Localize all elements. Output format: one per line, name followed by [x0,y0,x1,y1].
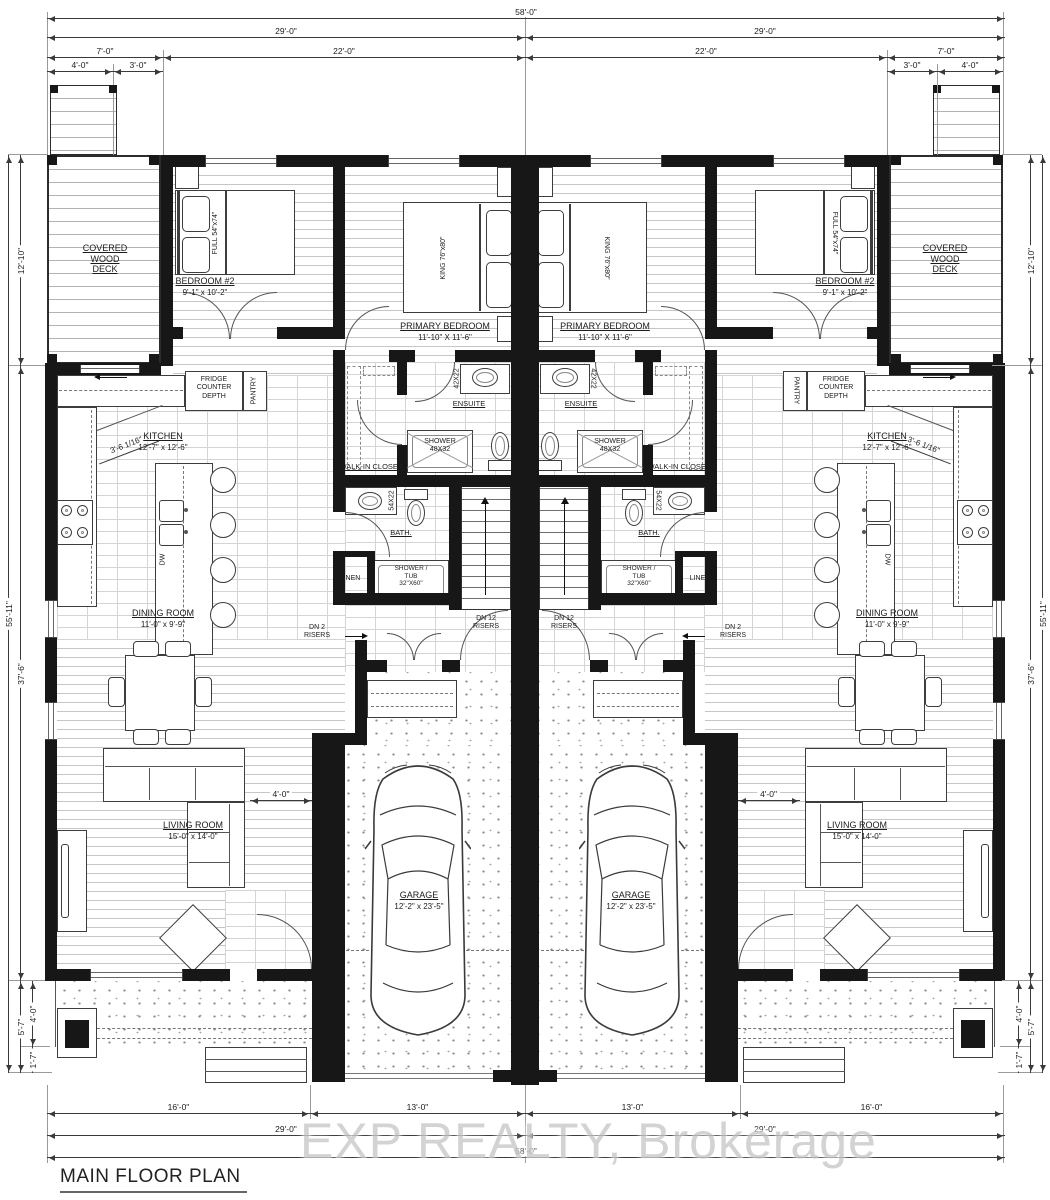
burner [978,527,989,538]
ext-line [8,980,48,981]
blanket-line [225,191,227,274]
dim-label: 16'-0" [165,1102,193,1112]
wic-name: WALK-IN CLOSET [647,463,711,472]
pantry-label: PANTRY [251,367,260,415]
dishwasher-label: DW [882,545,891,575]
living-size: 15'-0" x 14'-0" [133,832,253,841]
chair [133,729,159,745]
bath-name: BATH. [375,529,427,538]
window-dining-2 [993,702,1005,740]
burner [962,505,973,516]
toilet-bowl [541,432,559,460]
wall-linen-north [675,551,717,557]
linen-name: LINEN [331,575,369,583]
chair [859,729,885,745]
stool [210,467,236,493]
unit-left: FULL 54"x74" BEDROOM #2 9'-1" x 10'-2" C… [45,0,525,1200]
stairs-label: DN 12 RISERS [459,615,513,632]
bath-name: BATH. [623,529,675,538]
dim-main-depth-left: 37'-6" [20,366,21,981]
dim-main-depth-right: 37'-6" [1030,366,1031,981]
dim-side-total-left: 55'-11" [8,155,9,1073]
dining-size: 11'-0" x 9'-9" [829,620,945,629]
stool [814,512,840,538]
ext-line [887,50,888,155]
dim-label: 16'-0" [858,1102,886,1112]
linen-name: LINEN [681,575,719,583]
ensuite-vanity-label: 42X22 [454,361,463,397]
wall-garage-step [312,733,367,745]
stool [814,467,840,493]
wall-core-north [333,350,345,362]
garage-stairs-label: DN 2 RISERS [291,624,343,641]
slider-arrow [97,377,127,378]
chair [838,677,855,707]
shower-tub-label: SHOWER / TUB 32"X60" [605,565,673,588]
dim-label: 3'-0" [901,60,924,70]
ext-line [47,12,48,155]
pillow [182,196,210,232]
wall-bath-north [539,475,705,487]
dim-label: 3'-0" [127,60,150,70]
sofa-chaise [805,802,863,888]
sink-basin [866,524,891,546]
dim-label: 4'-0" [959,60,982,70]
dim-label: 58'-0" [512,1146,540,1156]
wall-bath-south [333,593,461,605]
toilet-bowl [407,500,425,526]
dim-deck-rest-right: 3'-0" [887,71,937,72]
wall-bedroom-divider [333,167,345,339]
sink-basin [159,524,184,546]
wall-core-west [705,362,717,512]
wic-shelf [347,366,361,470]
sofa-seam [807,766,945,767]
dim-label: 7'-0" [935,46,958,56]
dim-deck-rest-left: 3'-0" [113,71,163,72]
counter-dash [867,390,991,391]
tv [61,844,69,918]
garage-stairs-arrow [685,636,705,637]
dim-label: 29'-0" [751,26,779,36]
porch-edge [55,981,56,1047]
porch-steps [743,1047,845,1083]
chair [891,641,917,657]
full-bed-label: FULL 54"x74" [212,201,222,265]
king-bed-label: KING 76"x80" [440,226,450,290]
window-primary [388,155,460,167]
front-door-opening [793,969,820,981]
tv [981,844,989,918]
sofa [103,748,245,802]
deck-name: COVERED WOOD DECK [65,243,145,275]
wall-deck-side [877,167,889,366]
sofa-seam [149,768,150,800]
wall-garage-west [705,745,738,1070]
dim-label: 37'-6" [1026,660,1036,688]
ext-line [1003,1085,1004,1163]
bath-sink [668,492,692,510]
dim-overall-bottom: 58'-0" [47,1157,1005,1158]
garage-steps [367,680,457,718]
garage-door [345,1070,493,1082]
step-dash [371,706,453,707]
sofa-seam [854,768,855,800]
dim-label: 12'-10" [16,244,26,276]
toilet-tank [404,489,428,500]
window-living [90,969,183,981]
porch-edge [994,981,995,1047]
wall-deck-side [161,167,173,366]
sofa-seam [900,768,901,800]
ext-line [525,12,526,155]
garage-stairs-arrow [345,636,365,637]
page-title: MAIN FLOOR PLAN [60,1166,247,1193]
sofa-seam [195,768,196,800]
chair [108,677,125,707]
living-size: 15'-0" x 14'-0" [797,832,917,841]
kitchen-name: KITCHEN [839,431,935,442]
dim-label: 22'-0" [692,46,720,56]
wall-bedroom2-south [717,327,773,339]
living-name: LIVING ROOM [133,820,253,831]
dim-porch-depth-left: 4'-0" [32,981,33,1047]
ext-line [8,154,48,155]
headboard [177,190,180,275]
pillow [538,210,564,256]
dim-label: 4'-0" [270,789,293,799]
dim-label: 13'-0" [619,1102,647,1112]
front-door-opening [230,969,257,981]
wall-garage-front [525,1070,557,1082]
dim-overall-top: 58'-0" [47,18,1005,19]
dim-label: 22'-0" [330,46,358,56]
ensuite-sink [472,368,498,387]
bath-vanity-label: 54X22 [389,483,398,519]
bedroom2-name: BEDROOM #2 [145,276,265,287]
burner [978,505,989,516]
wall-west [993,375,1005,981]
living-name: LIVING ROOM [797,820,917,831]
wall-garage-front [312,1070,345,1082]
ensuite-name: ENSUITE [557,400,605,409]
wall-linen-north [333,551,375,557]
pillow [182,237,210,273]
pillow [486,262,512,308]
wic-shelf [689,366,703,470]
dim-front-garage-right: 13'-0" [525,1113,740,1114]
garage-name: GARAGE [595,890,667,901]
dim-label: 55'-11" [4,598,14,630]
toilet-tank [538,460,562,471]
bedroom2-size: 9'-1" x 10'-2" [145,288,265,297]
dim-porch-steps-left: 1'-7" [32,1047,33,1073]
pantry-label: PANTRY [791,367,800,415]
kitchen-name: KITCHEN [115,431,211,442]
counter-dash [59,390,183,391]
step-dash [371,693,453,694]
stool [210,557,236,583]
garage-size: 12'-2" x 23'-5" [379,902,459,911]
step-line [743,1071,845,1072]
window-dining-2 [45,702,57,740]
fridge-label: FRIDGE COUNTER DEPTH [809,376,863,401]
wall-garage-north [442,660,460,672]
step-line [205,1071,307,1072]
floor-plan: FULL 54"x74" BEDROOM #2 9'-1" x 10'-2" C… [0,0,1050,1200]
dim-label: 29'-0" [272,1124,300,1134]
dim-deck-left: 7'-0" [47,57,163,58]
dining-name: DINING ROOM [829,608,945,619]
chair [165,729,191,745]
wic-shelf [363,366,395,376]
sink-basin [866,500,891,522]
dim-living-clear: 4'-0" [738,800,800,801]
sofa-seam [820,804,821,886]
pillow [840,237,868,273]
ext-line [1002,980,1042,981]
wic-name: WALK-IN CLOSET [339,463,403,472]
dim-label: 5'-7" [16,1016,26,1039]
deck-post [891,155,901,165]
wall-bedroom2-south [867,327,877,339]
dim-unit-left: 22'-0" [163,57,525,58]
dim-porch-total-right: 5'-7" [1030,981,1031,1073]
wall-bedroom2-south [277,327,333,339]
dining-table [125,655,195,731]
wic-shelf [655,366,687,376]
deck-post [149,155,159,165]
wall-bath-south [589,593,717,605]
dim-half-left: 29'-0" [47,37,525,38]
burner [77,527,88,538]
dim-label: 4'-0" [758,789,781,799]
primary-name: PRIMARY BEDROOM [375,321,515,332]
chair [133,641,159,657]
dim-side-total-right: 55'-11" [1042,155,1043,1073]
dim-porch-steps-right: 1'-7" [1018,1047,1019,1073]
dim-label: 29'-0" [272,26,300,36]
sofa-chaise [187,802,245,888]
stairs-label: DN 12 RISERS [537,615,591,632]
pillow [538,262,564,308]
bedroom2-size: 9'-1" x 10'-2" [785,288,905,297]
sofa-seam [229,804,230,886]
toilet-tank [488,460,512,471]
bath-vanity-label: 54X22 [653,483,662,519]
wall-garage-front [493,1070,525,1082]
king-bed-label: KING 76"x80" [600,226,610,290]
dim-label: 13'-0" [404,1102,432,1112]
pillow [840,196,868,232]
kitchen-counter-north [865,375,993,407]
primary-size: 11'-10" X 11'-6" [375,333,515,342]
wall-stair-west [449,487,461,610]
wall-front [705,969,1005,981]
dim-label: 12'-10" [1026,244,1036,276]
window-dining-1 [45,600,57,638]
ext-line [1002,154,1042,155]
porch-steps [205,1047,307,1083]
stool [210,512,236,538]
step-dash [597,693,679,694]
window-bedroom2 [205,155,277,167]
dim-deck-depth-left: 12'-10" [20,155,21,366]
blanket-line [824,191,826,274]
sofa-seam [821,862,861,863]
dim-front-living-right: 16'-0" [740,1113,1003,1114]
wall-garage-west-upper [355,640,367,745]
sofa-seam [189,862,229,863]
porch-column [65,1020,89,1048]
sofa-seam [105,766,243,767]
ext-line [992,365,1042,366]
dim-label: 37'-6" [16,660,26,688]
step-dash [597,706,679,707]
dim-label: 29'-0" [751,1124,779,1134]
slider-arrow [923,377,953,378]
dim-label: 1'-7" [1014,1049,1024,1072]
porch-dash [738,1038,953,1039]
wall-bedroom2-south [173,327,183,339]
primary-size: 11'-10" X 11'-6" [535,333,675,342]
wall-garage-north [590,660,608,672]
wall-wic-ensuite [397,362,407,395]
faucet [184,508,188,512]
dining-name: DINING ROOM [105,608,221,619]
toilet-bowl [625,500,643,526]
ext-line [47,1085,48,1163]
ensuite-name: ENSUITE [445,400,493,409]
wall-bedroom-divider [705,167,717,339]
stool [814,557,840,583]
dim-label: 4'-0" [69,60,92,70]
dim-label: 58'-0" [512,7,540,17]
wall-party [511,155,525,1085]
dim-deck-stair-left: 4'-0" [47,71,113,72]
wall-core-north [389,350,415,362]
kitchen-size: 12'-7" x 12'-6" [115,443,211,452]
shower-label: SHOWER 48X32 [579,438,641,455]
chair [925,677,942,707]
headboard [870,190,873,275]
porch-dash [738,1028,953,1029]
step-line [743,1059,845,1060]
window-bedroom2 [773,155,845,167]
dim-living-clear: 4'-0" [250,800,312,801]
toilet-bowl [491,432,509,460]
ensuite-vanity-label: 42X22 [588,361,597,397]
chair [891,729,917,745]
burner [962,527,973,538]
window-living [867,969,960,981]
toilet-tank [622,489,646,500]
deck-post [109,85,117,93]
porch-column [961,1020,985,1048]
sofa [805,748,947,802]
burner [61,527,72,538]
ext-line [937,64,938,155]
blanket-line [479,204,481,311]
deck-stairs [50,85,117,155]
dim-half-bottom-right: 29'-0" [525,1135,1005,1136]
kitchen-size: 12'-7" x 12'-6" [839,443,935,452]
wall-garage-step [683,733,738,745]
primary-name: PRIMARY BEDROOM [535,321,675,332]
chair [859,641,885,657]
dishwasher-label: DW [160,545,169,575]
wall-core-west [333,362,345,512]
dim-front-garage-left: 13'-0" [310,1113,525,1114]
deck-slider-door [80,365,140,373]
chair [165,641,191,657]
fridge-label: FRIDGE COUNTER DEPTH [187,376,241,401]
dim-half-right: 29'-0" [525,37,1005,38]
dim-deck-stair-right: 4'-0" [937,71,1003,72]
window-primary [590,155,662,167]
wall-garage-west-upper [683,640,695,745]
bedroom2-name: BEDROOM #2 [785,276,905,287]
dim-label: 4'-0" [28,1003,38,1026]
wall-garage-front [705,1070,738,1082]
stair-direction-arrow [485,500,486,595]
shower-label: SHOWER 48X32 [409,438,471,455]
wall-core-north [635,350,661,362]
garage-size: 12'-2" x 23'-5" [591,902,671,911]
kitchen-counter-north [57,375,185,407]
burner [61,505,72,516]
sink-basin [159,500,184,522]
dim-front-living-left: 16'-0" [47,1113,310,1114]
faucet [184,530,188,534]
ext-line [113,64,114,155]
pillow [486,210,512,256]
dim-unit-right: 22'-0" [525,57,887,58]
faucet [862,530,866,534]
dim-half-bottom-left: 29'-0" [47,1135,525,1136]
deck-post [50,85,58,93]
step-line [205,1059,307,1060]
full-bed-label: FULL 54"x74" [828,201,838,265]
ensuite-sink [552,368,578,387]
dining-table [855,655,925,731]
wall-core-north [455,350,511,362]
wall-core-north [705,350,717,362]
garage-door [557,1070,705,1082]
unit-right: FULL 54"x74" BEDROOM #2 9'-1" x 10'-2" C… [525,0,1005,1200]
deck-post [47,155,57,165]
dim-label: 5'-7" [1026,1016,1036,1039]
deck-post [993,155,1003,165]
porch-dash [97,1028,312,1029]
burner [77,505,88,516]
ext-line [1003,12,1004,155]
dim-porch-depth-right: 4'-0" [1018,981,1019,1047]
dim-deck-depth-right: 12'-10" [1030,155,1031,366]
wall-west [45,375,57,981]
garage-stairs-label: DN 2 RISERS [707,624,759,641]
blanket-line [570,204,572,311]
bath-sink [358,492,382,510]
dim-label: 4'-0" [1014,1003,1024,1026]
ext-line [163,50,164,155]
dim-deck-right: 7'-0" [887,57,1005,58]
wall-stair-west [589,487,601,610]
dim-label: 55'-11" [1038,598,1048,630]
wall-wic-ensuite [643,362,653,395]
stair-direction-arrow [564,500,565,595]
porch-dash [97,1038,312,1039]
